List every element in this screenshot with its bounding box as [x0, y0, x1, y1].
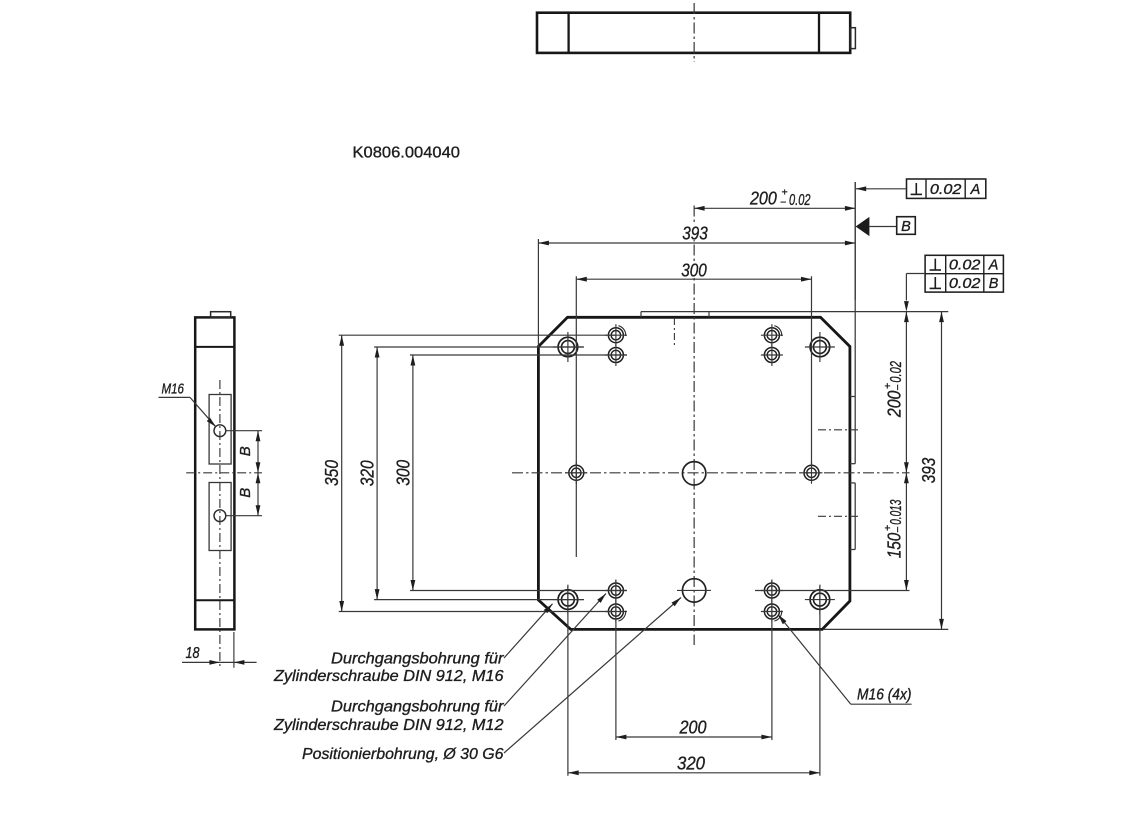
svg-text:150: 150: [885, 533, 905, 559]
svg-text:300: 300: [393, 460, 413, 486]
svg-text:18: 18: [186, 645, 200, 662]
svg-text:0.02: 0.02: [888, 361, 905, 383]
svg-text:K0806.004040: K0806.004040: [353, 145, 461, 162]
svg-text:0.02: 0.02: [789, 192, 811, 209]
svg-text:B: B: [901, 219, 911, 235]
svg-text:M16 (4x): M16 (4x): [857, 687, 912, 704]
svg-text:0.02: 0.02: [930, 182, 962, 198]
svg-text:200: 200: [749, 189, 777, 209]
svg-text:0.02: 0.02: [949, 276, 981, 292]
svg-text:300: 300: [681, 261, 707, 281]
svg-text:Positionierbohrung, Ø 30 G6: Positionierbohrung, Ø 30 G6: [302, 746, 504, 763]
svg-text:−: −: [892, 526, 904, 532]
svg-text:200: 200: [679, 718, 707, 738]
svg-text:B: B: [237, 488, 254, 498]
svg-text:Durchgangsbohrung für: Durchgangsbohrung für: [331, 650, 504, 667]
svg-text:350: 350: [322, 460, 342, 486]
svg-text:Zylinderschraube DIN 912, M12: Zylinderschraube DIN 912, M12: [273, 717, 504, 734]
svg-text:0.02: 0.02: [949, 258, 981, 274]
svg-text:200: 200: [885, 391, 905, 418]
svg-text:A: A: [988, 258, 999, 274]
svg-text:−: −: [892, 384, 904, 390]
svg-text:Zylinderschraube DIN 912, M16: Zylinderschraube DIN 912, M16: [273, 668, 504, 685]
svg-text:Durchgangsbohrung für: Durchgangsbohrung für: [331, 698, 504, 715]
svg-text:320: 320: [358, 460, 378, 486]
svg-text:0.013: 0.013: [888, 500, 905, 525]
svg-text:B: B: [989, 276, 999, 292]
svg-text:393: 393: [919, 458, 939, 484]
svg-text:A: A: [970, 182, 981, 198]
svg-text:M16: M16: [162, 381, 185, 397]
svg-text:393: 393: [682, 224, 708, 244]
svg-text:B: B: [237, 446, 254, 456]
svg-text:320: 320: [677, 753, 705, 773]
svg-text:−: −: [780, 196, 786, 208]
